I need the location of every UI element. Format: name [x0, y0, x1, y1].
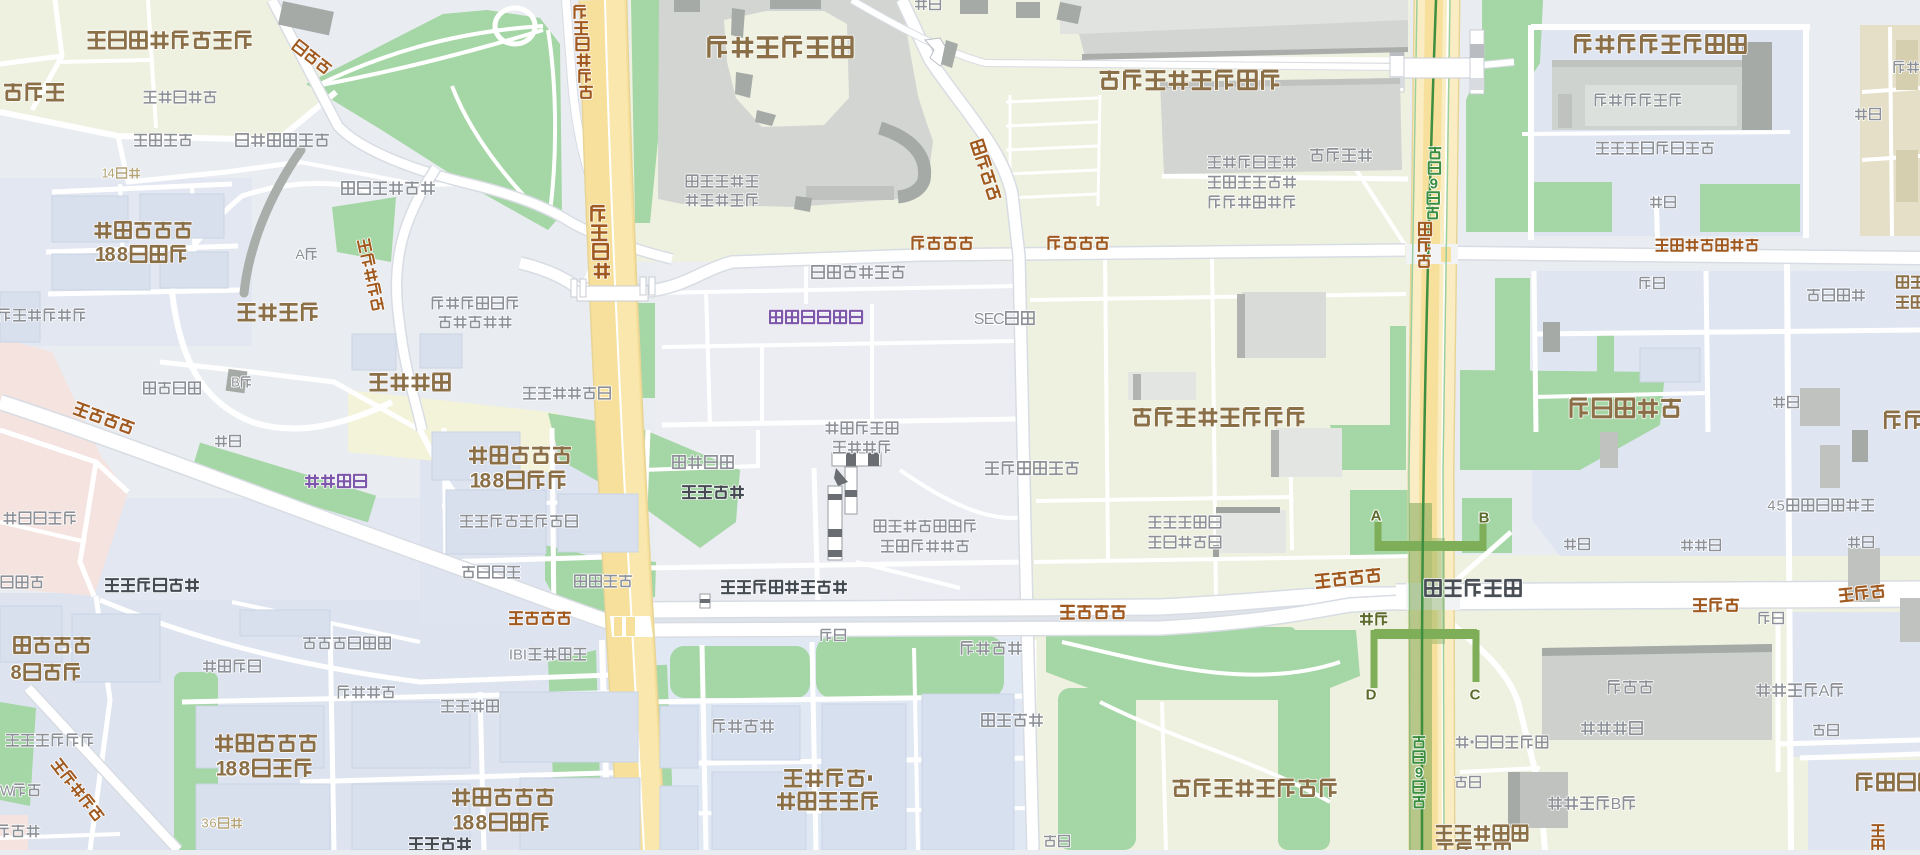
svg-text:4: 4: [107, 166, 114, 181]
svg-text:8: 8: [239, 758, 251, 781]
svg-text:4: 4: [1767, 497, 1775, 514]
svg-text:8: 8: [117, 244, 128, 266]
svg-text:B: B: [1479, 509, 1490, 526]
svg-text:8: 8: [104, 244, 115, 266]
svg-text:8: 8: [463, 812, 475, 835]
svg-text:9: 9: [1415, 764, 1423, 781]
svg-text:3: 3: [201, 816, 208, 831]
svg-text:8: 8: [493, 470, 505, 493]
svg-text:A: A: [1371, 507, 1382, 524]
svg-text:8: 8: [225, 758, 237, 781]
svg-text:A: A: [295, 246, 305, 262]
svg-text:B: B: [513, 646, 523, 663]
svg-text:8: 8: [480, 470, 492, 493]
svg-text:C: C: [1470, 686, 1481, 703]
svg-text:8: 8: [476, 812, 488, 835]
svg-text:6: 6: [209, 816, 216, 831]
svg-text:A: A: [1819, 683, 1830, 700]
svg-text:D: D: [1366, 686, 1377, 703]
svg-text:I: I: [523, 646, 527, 663]
svg-text:9: 9: [1430, 175, 1438, 192]
svg-text:8: 8: [10, 662, 21, 684]
svg-text:W: W: [0, 782, 15, 799]
svg-text:B: B: [231, 375, 240, 390]
svg-text:C: C: [993, 311, 1005, 328]
svg-text:B: B: [1611, 796, 1622, 813]
svg-text:5: 5: [1777, 497, 1785, 514]
